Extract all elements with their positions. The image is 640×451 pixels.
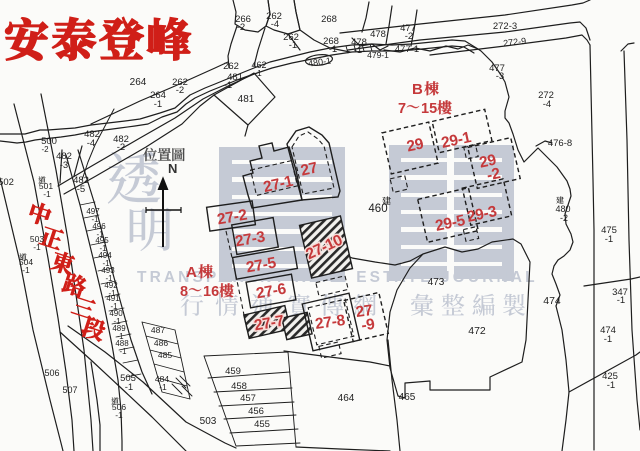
svg-text:-1: -1 [617,295,625,306]
svg-text:-1: -1 [354,45,362,56]
svg-text:473: 473 [428,277,445,288]
svg-text:-2: -2 [237,22,245,33]
svg-text:-1: -1 [224,80,232,91]
svg-text:-1: -1 [607,380,615,391]
svg-text:-4: -4 [543,99,551,110]
svg-text:-1: -1 [329,44,337,55]
svg-text:268: 268 [321,14,337,25]
svg-text:-1: -1 [605,234,613,245]
svg-text:476-8: 476-8 [548,138,572,149]
svg-text:-1: -1 [119,347,127,356]
svg-text:7: 7 [398,101,406,117]
svg-text:B: B [412,81,423,98]
svg-text:481: 481 [238,94,255,105]
svg-text:-4: -4 [271,19,279,30]
svg-text:485: 485 [158,350,172,360]
svg-text:-2: -2 [560,213,568,223]
svg-text:-2: -2 [117,142,125,153]
svg-text:-1: -1 [22,265,30,275]
svg-text:-1: -1 [115,410,123,420]
svg-text:459: 459 [225,366,241,377]
svg-text:502: 502 [0,177,14,188]
svg-text:479-1: 479-1 [367,50,389,60]
svg-text:A: A [186,264,197,281]
svg-text:262: 262 [223,61,239,72]
svg-text:-5: -5 [77,184,85,195]
svg-text:-3: -3 [60,160,68,171]
svg-text:-1: -1 [154,99,162,110]
svg-text:464: 464 [338,393,355,404]
svg-text:15: 15 [421,101,437,117]
svg-text:-1: -1 [43,189,51,199]
svg-text:-3: -3 [496,71,504,82]
svg-text:486: 486 [154,338,168,348]
svg-text:-2: -2 [41,145,49,154]
svg-text:-1: -1 [604,334,612,345]
svg-text:-4: -4 [87,138,95,149]
svg-text:272-3: 272-3 [493,21,517,32]
svg-text:460: 460 [368,203,387,215]
svg-text:-1: -1 [33,242,41,252]
svg-text:465: 465 [399,392,416,403]
svg-text:478: 478 [370,29,386,40]
svg-text:-2: -2 [176,85,184,96]
svg-text:455: 455 [254,419,270,430]
svg-text:8: 8 [180,284,188,300]
svg-text:-1: -1 [125,382,133,393]
svg-text:16: 16 [203,284,219,300]
svg-text:503: 503 [200,416,217,427]
svg-text:487: 487 [151,325,165,335]
svg-text:474: 474 [543,295,561,307]
svg-text:N: N [168,161,177,176]
svg-text:-1: -1 [289,40,297,51]
svg-text:264: 264 [130,77,147,88]
svg-text:458: 458 [231,381,247,392]
svg-text:457: 457 [240,393,256,404]
svg-text:472: 472 [468,325,486,337]
svg-text:506: 506 [44,368,59,378]
svg-text:-1: -1 [159,382,167,392]
svg-text:-1: -1 [254,68,262,78]
svg-text:477-1: 477-1 [395,44,419,55]
svg-text:507: 507 [62,385,77,395]
svg-text:456: 456 [248,406,264,417]
svg-text:-2: -2 [405,31,413,42]
